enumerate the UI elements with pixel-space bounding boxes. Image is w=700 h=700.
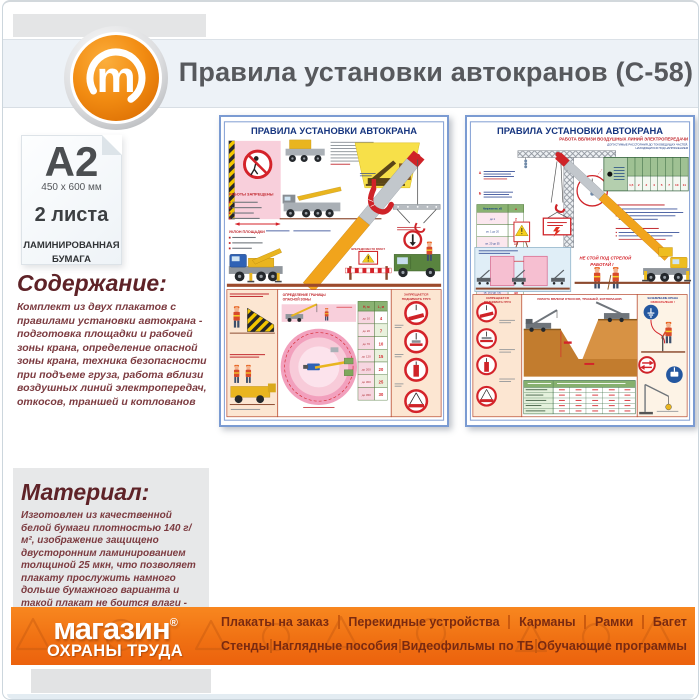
menu-separator: [399, 639, 401, 653]
gates-panel-illustration: [475, 248, 571, 292]
footer-store-logo[interactable]: магазин® ОХРАНЫ ТРУДА: [29, 608, 201, 659]
svg-text:25: 25: [379, 380, 384, 385]
svg-text:Напряжение, кВ: Напряжение, кВ: [483, 208, 502, 211]
no-stand-under-boom-1: НЕ СТОЙ ПОД СТРЕЛОЙ: [580, 255, 633, 260]
svg-text:2: 2: [515, 217, 517, 221]
footer-logo-text-2: ОХРАНЫ ТРУДА: [29, 644, 201, 659]
svg-text:15: 15: [379, 354, 384, 359]
svg-text:до 450: до 450: [362, 393, 371, 397]
page-title: Правила установки автокранов (С-58): [176, 57, 696, 88]
no-lift-heading-1: ЗАПРЕЩАЕТСЯ: [404, 292, 429, 296]
poster-right-artwork: ПРАВИЛА УСТАНОВКИ АВТОКРАНА РАБОТА ВБЛИЗ…: [467, 117, 693, 425]
svg-text:Н, м: Н, м: [363, 305, 370, 309]
svg-text:10: 10: [675, 183, 679, 187]
svg-text:св. 20 до 35: св. 20 до 35: [485, 242, 500, 246]
menu-item-posters-on-order[interactable]: Плакаты на заказ: [221, 615, 329, 629]
menu-item-visual-aids[interactable]: Наглядные пособия: [273, 639, 398, 653]
svg-text:до 300: до 300: [362, 380, 371, 384]
bottom-decor-strip: [31, 669, 211, 693]
paper-sheets-label: 2 листа: [22, 204, 121, 227]
menu-item-training-programs[interactable]: Обучающие программы: [537, 639, 687, 653]
footer-menu-row-2: Стенды Наглядные пособия Видеофильмы по …: [221, 636, 687, 656]
works-forbidden-label: РАБОТЫ ЗАПРЕЩЕНЫ: [229, 192, 274, 197]
menu-separator: [584, 615, 586, 629]
svg-text:2: 2: [638, 183, 640, 187]
svg-text:30: 30: [379, 392, 384, 397]
svg-text:до 120: до 120: [362, 355, 371, 359]
svg-text:св. 1 до 20: св. 1 до 20: [486, 229, 500, 233]
poster-left-thumbnail[interactable]: ПРАВИЛА УСТАНОВКИ АВТОКРАНА УКЛОН ПЛОЩАД…: [219, 115, 449, 427]
svg-text:до 70: до 70: [363, 342, 371, 346]
menu-item-flip-systems[interactable]: Перекидные устройства: [348, 615, 499, 629]
footer-logo-text-1: магазин: [53, 611, 170, 646]
poster-right-subtitle2b: НАХОДЯЩИХСЯ ПОД НАПРЯЖЕНИЕМ: [635, 146, 688, 150]
no-lift-heading-2: ПОДНИМАТЬ ГРУЗ: [402, 297, 431, 301]
site-logo-icon: m: [61, 23, 171, 133]
svg-text:4: 4: [653, 183, 655, 187]
product-card: Правила установки автокранов (С-58) m A2…: [2, 0, 699, 700]
poster-right-thumbnail[interactable]: ПРАВИЛА УСТАНОВКИ АВТОКРАНА РАБОТА ВБЛИЗ…: [465, 115, 695, 427]
danger-zone-diagram: [281, 304, 357, 408]
site-logo[interactable]: m: [61, 23, 171, 133]
poster-right-subtitle: РАБОТА ВБЛИЗИ ВОЗДУШНЫХ ЛИНИЙ ЭЛЕКТРОПЕР…: [559, 136, 688, 141]
slopes-heading: РАБОТА ВБЛИЗИ ОТКОСОВ, ТРАНШЕЙ, КОТЛОВАН…: [537, 297, 622, 301]
no-stand-under-boom-2: РАБОТАЙ !: [590, 262, 614, 267]
content-heading: Содержание:: [17, 270, 167, 297]
svg-text:20: 20: [379, 367, 384, 372]
material-text: Изготовлен из качественной белой бумаги …: [21, 510, 201, 623]
svg-text:до 200: до 200: [362, 367, 371, 371]
svg-text:2: 2: [646, 183, 648, 187]
svg-text:5: 5: [661, 183, 663, 187]
logo-letter: m: [96, 53, 135, 102]
menu-item-baguette[interactable]: Багет: [653, 615, 687, 629]
svg-text:А: А: [479, 171, 482, 175]
danger-zone-heading-2: ОПАСНОЙ ЗОНЫ: [283, 297, 312, 301]
footer-menu-row-1: Плакаты на заказ Перекидные устройства К…: [221, 612, 687, 632]
card-bottom-edge: [7, 694, 694, 699]
menu-item-frames[interactable]: Рамки: [595, 615, 633, 629]
menu-item-stands[interactable]: Стенды: [221, 639, 269, 653]
poster-left-title: ПРАВИЛА УСТАНОВКИ АВТОКРАНА: [251, 125, 417, 136]
paper-type-label: ЛАМИНИРОВАННАЯ БУМАГА: [22, 239, 121, 268]
paper-format-label: A2: [22, 142, 121, 182]
svg-text:до 20: до 20: [363, 329, 371, 333]
menu-separator: [270, 639, 272, 653]
menu-separator: [508, 615, 510, 629]
menu-separator: [338, 615, 340, 629]
menu-separator: [642, 615, 644, 629]
paper-format-badge: A2 450 x 600 мм 2 листа ЛАМИНИРОВАННАЯ Б…: [21, 135, 122, 265]
slope-label: УКЛОН ПЛОЩАДКИ: [229, 230, 265, 234]
svg-text:7: 7: [668, 183, 670, 187]
grounding-heading-2: ОБЯЗАТЕЛЬНО !: [651, 300, 675, 304]
menu-separator: [535, 639, 537, 653]
svg-text:L, м: L, м: [378, 305, 385, 309]
svg-text:11: 11: [683, 183, 687, 187]
content-text: Комплект из двух плакатов с правилами ус…: [17, 301, 215, 409]
distance-matrix-table: 1,5 2 2 4 5 7 10 11: [604, 158, 688, 191]
material-heading: Материал:: [21, 479, 149, 506]
registered-mark-icon: ®: [170, 617, 177, 629]
menu-item-safety-videos[interactable]: Видеофильмы по ТБ: [402, 639, 534, 653]
menu-item-pockets[interactable]: Карманы: [519, 615, 575, 629]
barrier-label: ВПЕРЕДИ МЕСТО РАБОТ: [351, 247, 385, 251]
poster-left-artwork: ПРАВИЛА УСТАНОВКИ АВТОКРАНА УКЛОН ПЛОЩАД…: [221, 117, 447, 425]
svg-text:1,5: 1,5: [629, 183, 634, 187]
poster-right-title: ПРАВИЛА УСТАНОВКИ АВТОКРАНА: [497, 125, 663, 136]
danger-zone-heading-1: ОПРЕДЕЛЕНИЕ ГРАНИЦЫ: [283, 293, 327, 297]
svg-text:до 1: до 1: [490, 217, 496, 221]
paper-size-label: 450 x 600 мм: [22, 182, 121, 193]
svg-text:10: 10: [379, 341, 384, 346]
danger-zone-table: Н, м L, м до 10 4 до 20 7 до 70 10 до 12…: [358, 301, 387, 400]
svg-text:до 10: до 10: [363, 317, 371, 321]
soil-distance-table: [524, 381, 636, 414]
